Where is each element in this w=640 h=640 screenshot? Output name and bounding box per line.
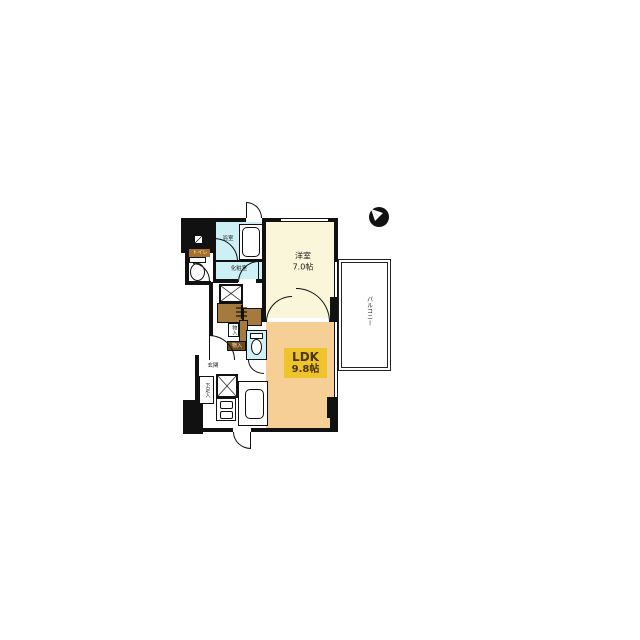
top-service-door-arc — [246, 202, 262, 218]
wall-right-mid-pillar — [330, 297, 338, 322]
wall-left-hall — [209, 282, 213, 336]
hall-door-arc — [209, 335, 235, 360]
service-box-icon — [219, 284, 243, 303]
toilet-door-arc — [193, 263, 210, 281]
kitchen-counter — [238, 381, 268, 426]
stove-burner — [220, 411, 233, 419]
bathtub — [239, 224, 263, 260]
bedroom-name: 洋室 — [295, 252, 311, 261]
storage-a-label: 物入 — [228, 323, 239, 337]
bathtub-inner — [242, 227, 260, 257]
wall-right-bottom-pillar — [327, 397, 338, 418]
hanger-rod-icon — [235, 305, 248, 319]
ldk-label-box: LDK 9.8帖 — [284, 348, 327, 378]
balcony-label: バルコニー — [362, 288, 376, 334]
ldk-name: LDK — [292, 351, 319, 364]
north-arrow-icon — [366, 204, 392, 230]
front-door-arc — [233, 432, 251, 449]
wall-bottom-left-seg — [199, 428, 233, 432]
bedroom-label: 洋室 7.0帖 — [283, 249, 323, 275]
ldk-size: 9.8帖 — [292, 364, 320, 375]
wall-bottom-right-seg — [251, 428, 338, 432]
toilet-label: トイレ — [189, 249, 210, 257]
shoe-cabinet: 下足入 — [199, 376, 214, 404]
washer-meter-icon — [194, 235, 203, 244]
wall-top-left-seg — [213, 218, 246, 222]
wc2-bowl — [251, 339, 262, 355]
wall-right-upper — [334, 222, 338, 262]
entrance-label: 玄関 — [202, 361, 224, 370]
wall-powder-bottom-left — [213, 279, 238, 283]
bedroom-size: 7.0帖 — [293, 263, 314, 272]
wall-toilet-bottom — [185, 281, 211, 285]
stove — [216, 398, 236, 421]
refrigerator-space-icon — [216, 374, 238, 398]
kitchen-sink — [245, 389, 264, 419]
floor-plan-canvas: バルコニー 浴室 化粧室 トイレ 物入 物入 — [0, 0, 640, 640]
bedroom-top-window — [281, 218, 328, 222]
bedroom-balcony-window — [334, 262, 338, 297]
ldk-balcony-window — [334, 322, 338, 397]
wc2-door-arc — [248, 360, 264, 374]
stove-burner — [220, 401, 233, 409]
wall-block-bottomleft — [183, 400, 203, 434]
